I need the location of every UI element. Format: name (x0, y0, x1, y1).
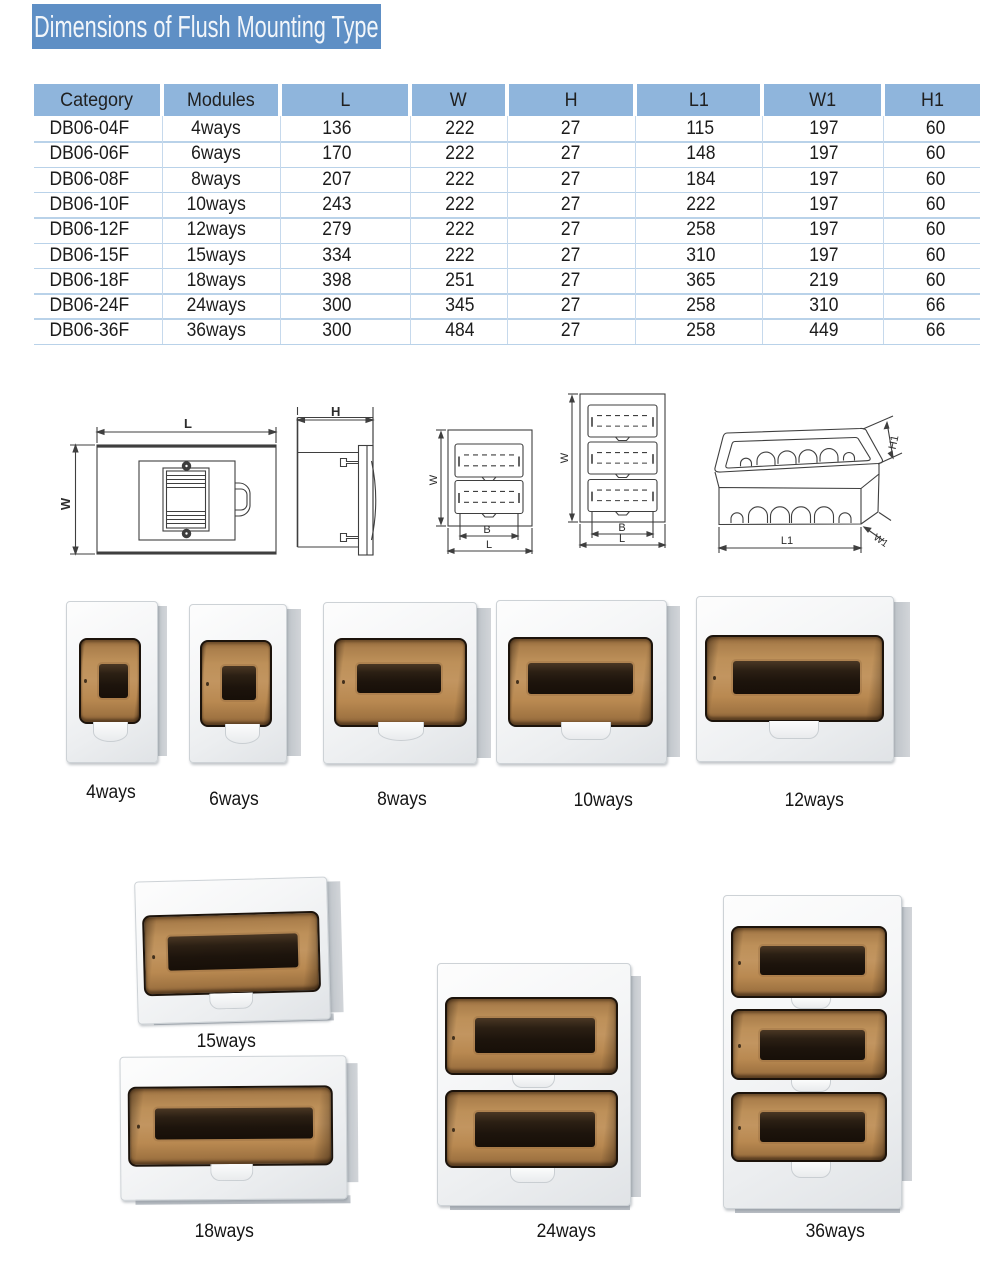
svg-text:W1: W1 (871, 532, 890, 550)
svg-text:W: W (58, 497, 73, 510)
svg-text:W: W (559, 452, 571, 463)
svg-text:L: L (184, 416, 192, 431)
svg-text:L: L (619, 533, 625, 545)
svg-text:B: B (483, 524, 490, 536)
svg-text:L1: L1 (781, 535, 793, 547)
svg-text:L: L (486, 539, 492, 551)
svg-text:H: H (331, 404, 340, 419)
svg-text:H1: H1 (887, 434, 902, 450)
svg-text:W: W (428, 474, 440, 485)
